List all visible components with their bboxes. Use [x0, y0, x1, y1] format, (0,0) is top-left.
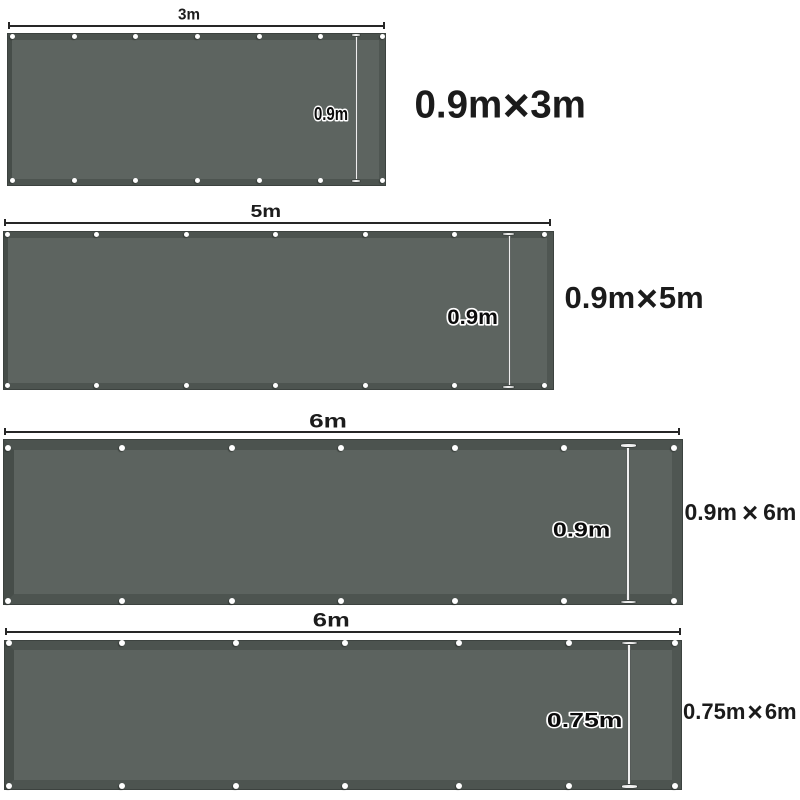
- svg-text:5m: 5m: [250, 202, 281, 220]
- svg-text:0.9m: 0.9m: [447, 305, 498, 328]
- svg-text:0.75m: 0.75m: [547, 709, 623, 731]
- svg-text:6m: 6m: [313, 611, 350, 629]
- svg-text:0.9m: 0.9m: [314, 104, 348, 125]
- svg-text:3m: 3m: [178, 6, 200, 23]
- svg-text:0.9m: 0.9m: [553, 518, 610, 541]
- svg-text:6m: 6m: [309, 412, 347, 430]
